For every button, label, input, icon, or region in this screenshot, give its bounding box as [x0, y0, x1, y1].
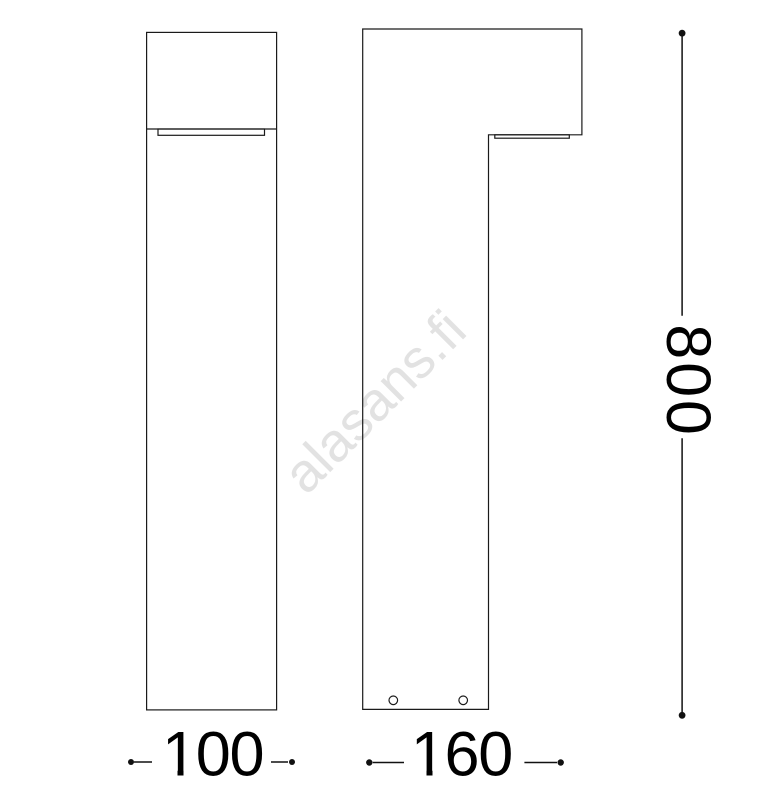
svg-text:160: 160 — [411, 720, 512, 790]
svg-text:800: 800 — [653, 324, 723, 438]
svg-text:alasans.fi: alasans.fi — [272, 299, 478, 505]
svg-text:100: 100 — [162, 720, 263, 790]
